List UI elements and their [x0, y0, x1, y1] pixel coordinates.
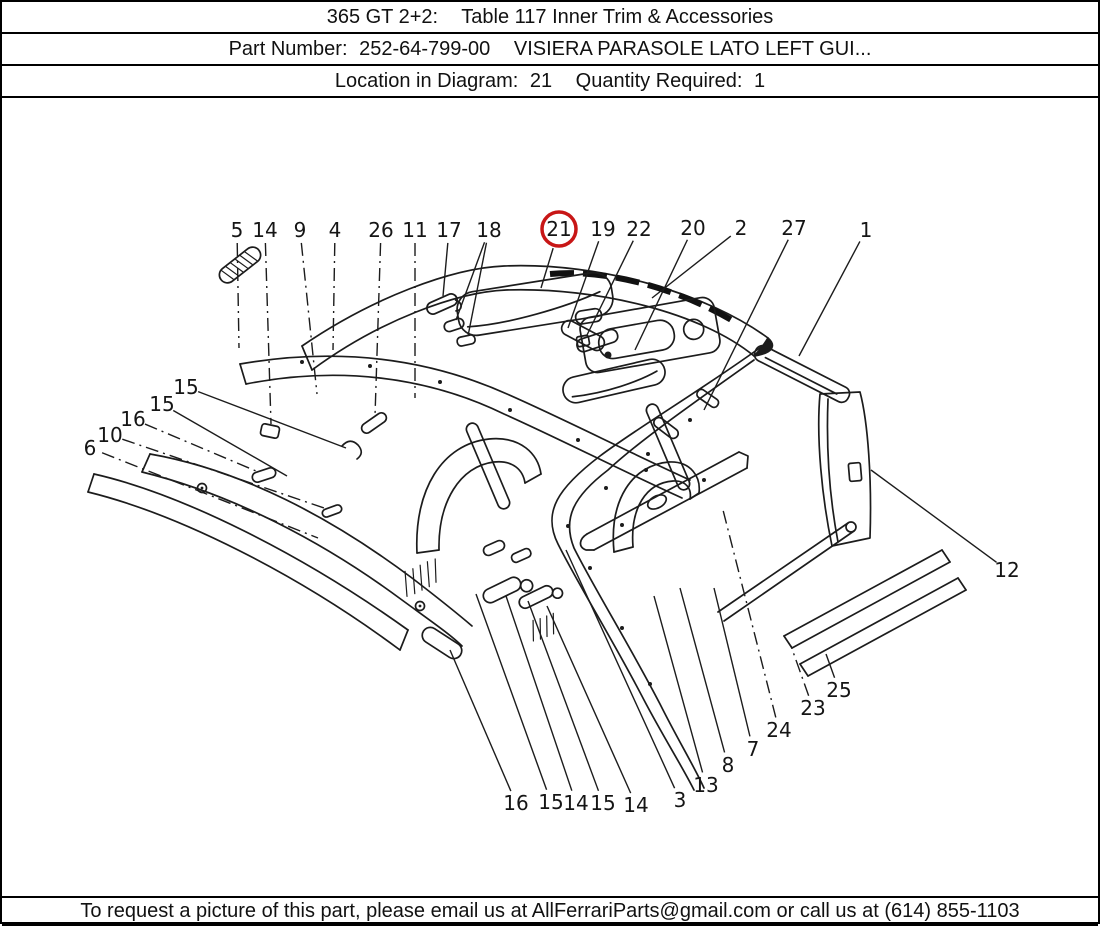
header-row-part: Part Number: 252-64-799-00 VISIERA PARAS…: [2, 34, 1098, 66]
windshield-lower-rail: [240, 356, 690, 498]
leader-line: [714, 588, 750, 736]
callout-15: 15: [149, 392, 174, 416]
cowl-rail: [142, 454, 472, 662]
callout-14: 14: [252, 218, 277, 242]
callout-4: 4: [329, 218, 342, 242]
parts-diagram-drawing: 5149426111718211922202271151516106161514…: [2, 98, 1098, 896]
callout-17: 17: [436, 218, 461, 242]
catalog-page: 365 GT 2+2: Table 117 Inner Trim & Acces…: [0, 0, 1100, 924]
callout-5: 5: [231, 218, 244, 242]
callout-10: 10: [97, 423, 122, 447]
quantity-value: 1: [754, 70, 765, 92]
leader-line: [723, 510, 776, 717]
quarter-trim-panel: [819, 392, 871, 546]
leader-line: [443, 243, 448, 296]
cant-rail: [580, 452, 748, 550]
callout-11: 11: [402, 218, 427, 242]
leader-line: [265, 243, 271, 424]
footer-contact-text: To request a picture of this part, pleas…: [80, 900, 1019, 922]
callout-8: 8: [722, 753, 735, 777]
callout-19: 19: [590, 217, 615, 241]
callout-7: 7: [747, 737, 760, 761]
callout-24: 24: [766, 718, 791, 742]
header-row-title: 365 GT 2+2: Table 117 Inner Trim & Acces…: [2, 2, 1098, 34]
footer-contact: To request a picture of this part, pleas…: [2, 896, 1098, 926]
leader-line: [102, 453, 318, 538]
callout-16: 16: [120, 407, 145, 431]
callout-9: 9: [294, 218, 307, 242]
leader-line: [566, 550, 675, 788]
leader-line: [450, 650, 511, 791]
leader-line: [145, 424, 256, 471]
part-number-value: 252-64-799-00: [359, 38, 490, 60]
model-name: 365 GT 2+2:: [327, 6, 438, 28]
callout-15: 15: [538, 790, 563, 814]
leader-line: [652, 236, 731, 298]
callout-14: 14: [623, 793, 648, 817]
part-description: VISIERA PARASOLE LATO LEFT GUI...: [514, 38, 872, 60]
leader-line: [654, 596, 703, 772]
location-value: 21: [530, 70, 552, 92]
leader-line: [198, 392, 346, 448]
leader-line: [799, 241, 860, 356]
callout-25: 25: [826, 678, 851, 702]
callout-26: 26: [368, 218, 393, 242]
leader-line: [301, 243, 317, 394]
location-label: Location in Diagram:: [335, 70, 518, 92]
callout-27: 27: [781, 216, 806, 240]
leader-line: [333, 243, 335, 350]
parts-diagram: 5149426111718211922202271151516106161514…: [2, 98, 1098, 896]
callout-20: 20: [680, 216, 705, 240]
arch-bracket-left: [417, 439, 541, 553]
callout-22: 22: [626, 217, 651, 241]
leader-line: [173, 410, 287, 476]
callout-18: 18: [476, 218, 501, 242]
left-sill-strip: [88, 474, 408, 650]
table-title: Table 117 Inner Trim & Accessories: [461, 6, 773, 28]
callout-13: 13: [693, 773, 718, 797]
quantity-label: Quantity Required:: [576, 70, 743, 92]
leader-line: [541, 248, 553, 288]
callout-15: 15: [173, 375, 198, 399]
callout-16: 16: [503, 791, 528, 815]
leader-line: [237, 243, 239, 348]
callout-3: 3: [674, 788, 687, 812]
leader-line: [791, 646, 809, 696]
leader-line: [456, 242, 485, 320]
leader-line: [871, 470, 997, 562]
header-row-location: Location in Diagram: 21 Quantity Require…: [2, 66, 1098, 98]
callout-12: 12: [994, 558, 1019, 582]
spring-part: [216, 244, 264, 286]
callout-21: 21: [546, 217, 571, 241]
callout-6: 6: [84, 436, 97, 460]
callout-15: 15: [590, 791, 615, 815]
roof-side-rail: [552, 342, 768, 790]
hatch-textures: [395, 554, 562, 644]
part-number-label: Part Number:: [229, 38, 348, 60]
callout-14: 14: [563, 791, 588, 815]
callout-23: 23: [800, 696, 825, 720]
callout-2: 2: [735, 216, 748, 240]
sill-moldings-right: [718, 522, 966, 676]
callout-1: 1: [860, 218, 873, 242]
leader-line: [568, 241, 599, 328]
